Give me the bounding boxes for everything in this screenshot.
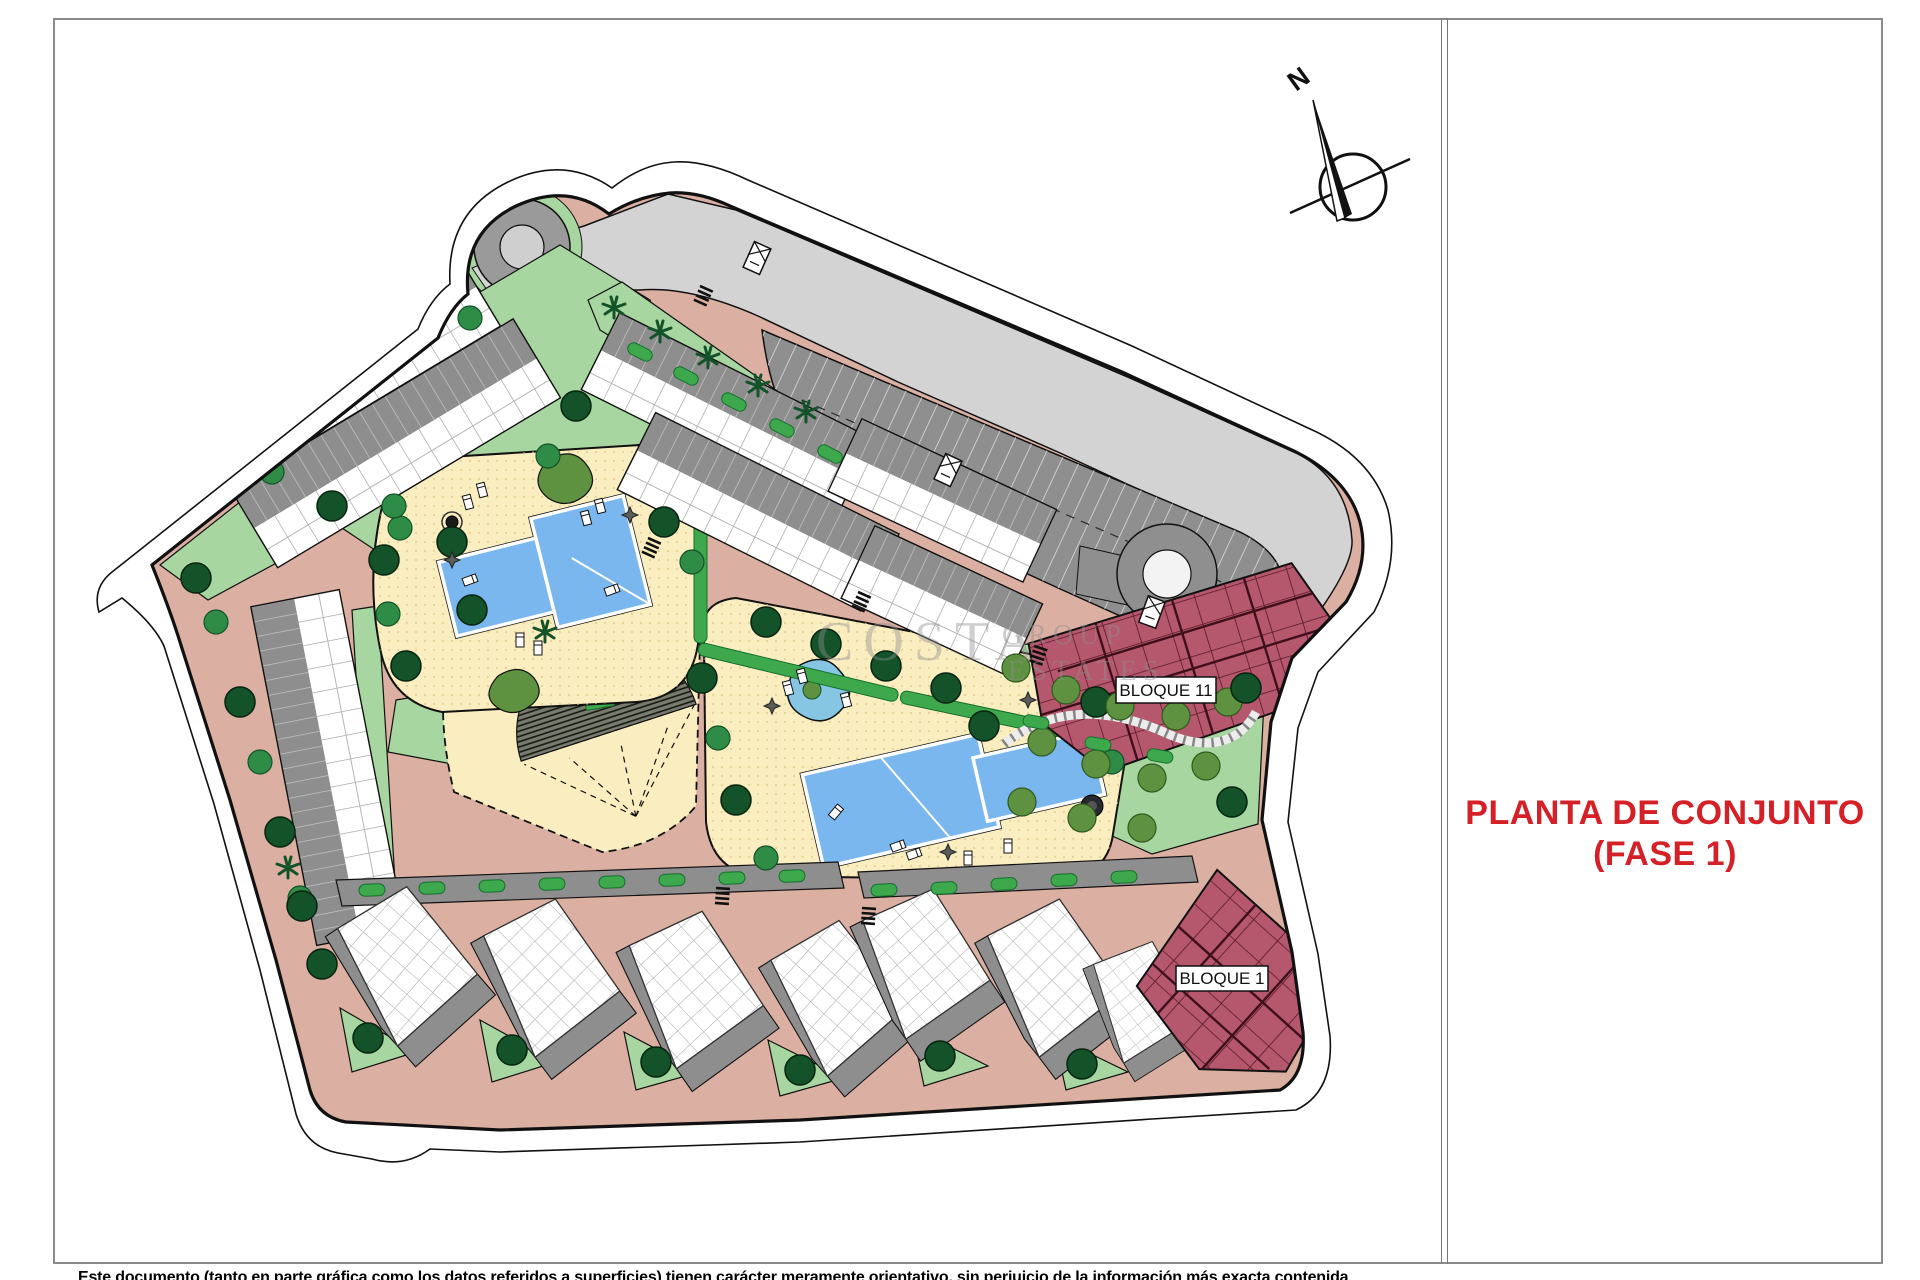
compass-crossbar: [1290, 159, 1410, 213]
watermark-word-estates: ESTATES: [1008, 656, 1164, 687]
north-compass: N: [1282, 61, 1410, 221]
watermark-word-group: GROUP: [1002, 620, 1127, 651]
site-plan-drawing: BLOQUE 11 BLOQUE 1 COSTA GROUP ESTATES N: [0, 0, 1920, 1280]
compass-needle-white: [1313, 100, 1345, 221]
bloque-1-label: BLOQUE 1: [1176, 966, 1268, 991]
drawing-sheet: BLOQUE 11 BLOQUE 1 COSTA GROUP ESTATES N…: [0, 0, 1920, 1280]
title-block: PLANTA DE CONJUNTO (FASE 1): [1452, 793, 1878, 875]
north-label: N: [1282, 61, 1315, 97]
page-title-line2: (FASE 1): [1452, 834, 1878, 875]
bloque-1-label-text: BLOQUE 1: [1179, 969, 1264, 988]
disclaimer-text: Este documento (tanto en parte gráfica c…: [78, 1269, 1838, 1280]
page-title-line1: PLANTA DE CONJUNTO: [1452, 793, 1878, 834]
